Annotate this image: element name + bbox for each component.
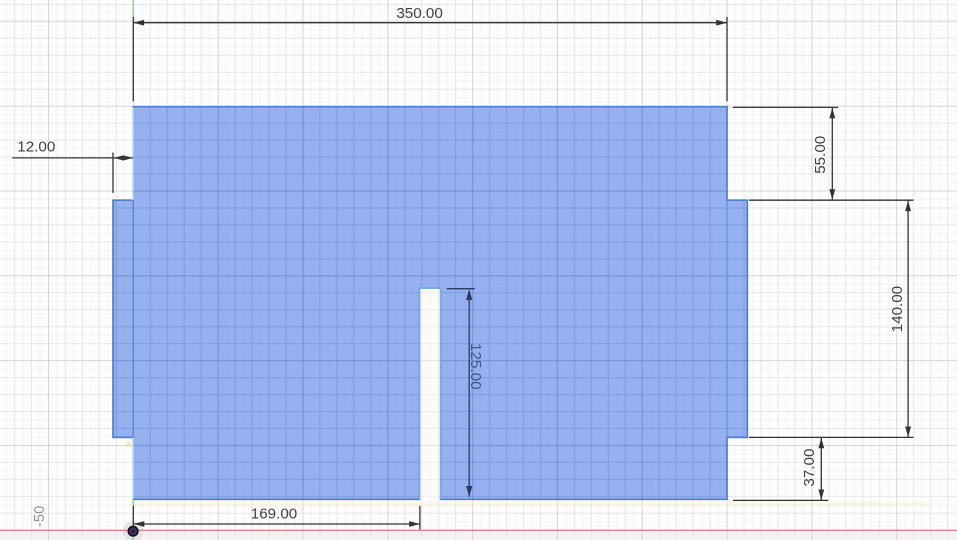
svg-text:55.00: 55.00 xyxy=(812,136,829,174)
svg-text:12.00: 12.00 xyxy=(17,139,55,156)
svg-text:125.00: 125.00 xyxy=(467,343,484,389)
svg-text:169.00: 169.00 xyxy=(251,505,297,522)
svg-text:-50: -50 xyxy=(32,506,48,527)
svg-text:350.00: 350.00 xyxy=(396,5,442,22)
svg-text:37.00: 37.00 xyxy=(801,449,818,487)
svg-text:140.00: 140.00 xyxy=(889,286,906,332)
